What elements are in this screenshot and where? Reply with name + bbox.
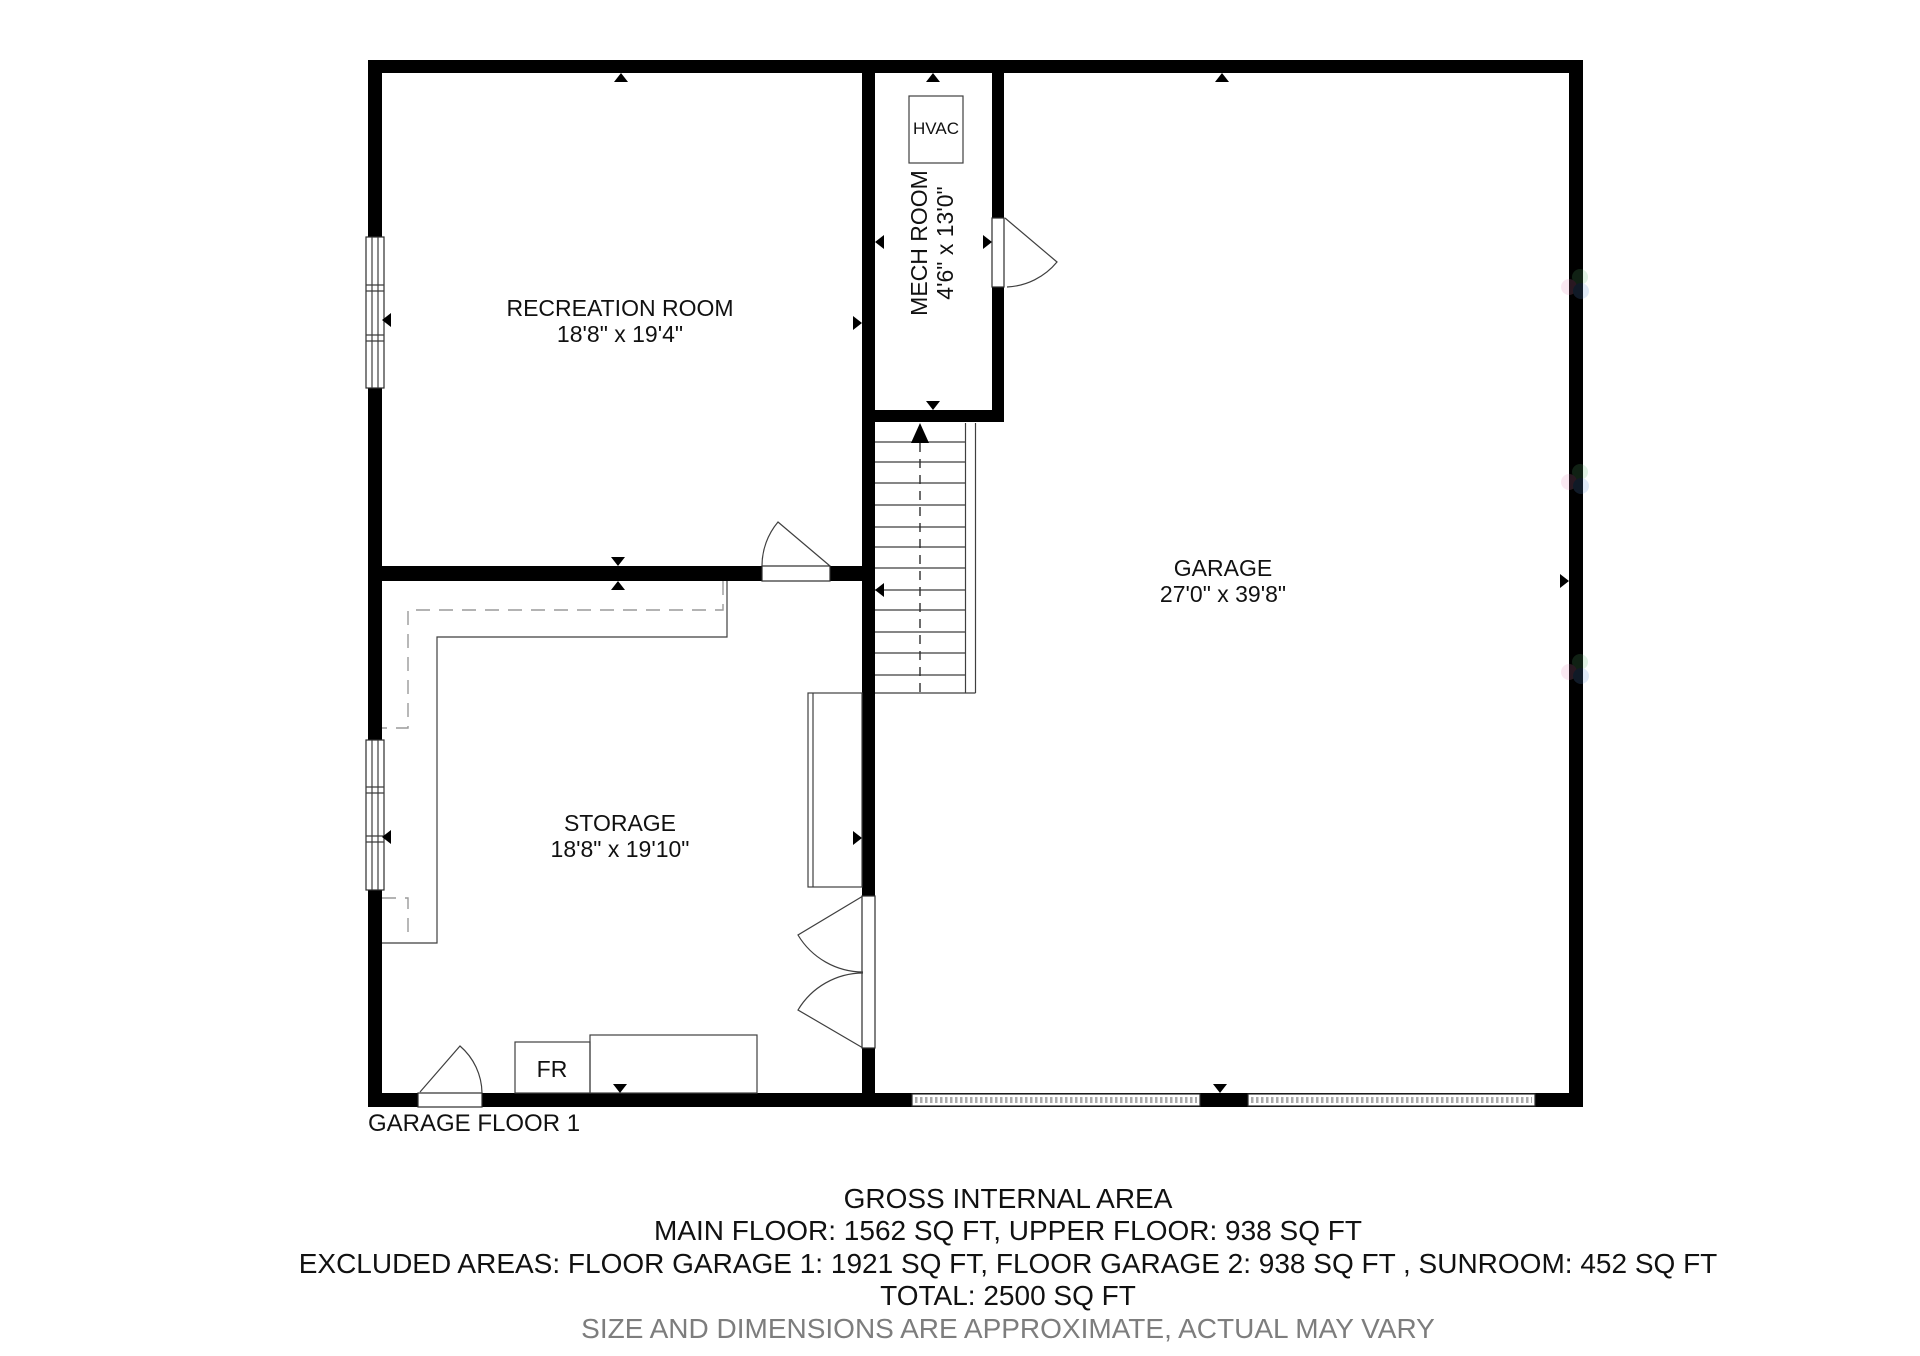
garage-dims: 27'0" x 39'8" xyxy=(1160,581,1286,607)
storage-workbench xyxy=(808,693,862,887)
door-storage-entry xyxy=(418,1046,482,1107)
window-recreation xyxy=(366,237,384,388)
summary-total: TOTAL: 2500 SQ FT xyxy=(880,1280,1136,1311)
freezer-label: FR xyxy=(537,1056,568,1082)
freezer-unit: FR xyxy=(515,1042,590,1093)
room-labels: RECREATION ROOM 18'8" x 19'4" MECH ROOM … xyxy=(506,170,1286,862)
summary-disclaimer: SIZE AND DIMENSIONS ARE APPROXIMATE, ACT… xyxy=(581,1313,1435,1344)
summary-excluded: EXCLUDED AREAS: FLOOR GARAGE 1: 1921 SQ … xyxy=(299,1248,1718,1279)
recreation-room-name: RECREATION ROOM xyxy=(506,295,733,321)
recreation-room-dims: 18'8" x 19'4" xyxy=(557,321,683,347)
staircase xyxy=(875,423,976,693)
floor-plan-page: FR HVAC xyxy=(0,0,1920,1356)
mech-room-name: MECH ROOM xyxy=(906,170,932,316)
storage-dims: 18'8" x 19'10" xyxy=(551,836,690,862)
floor-plan-drawing: FR HVAC xyxy=(0,0,1920,1356)
window-storage xyxy=(366,740,384,890)
mech-room-label-group: MECH ROOM 4'6" x 13'0" xyxy=(906,170,958,316)
storage-shelf-outline xyxy=(382,581,727,943)
storage-name: STORAGE xyxy=(564,810,676,836)
area-summary: GROSS INTERNAL AREA MAIN FLOOR: 1562 SQ … xyxy=(299,1183,1718,1344)
mech-room-dims: 4'6" x 13'0" xyxy=(932,186,958,299)
door-recreation xyxy=(762,522,830,581)
door-mech-room xyxy=(992,218,1057,287)
stair-up-arrow-icon xyxy=(911,423,929,443)
summary-title: GROSS INTERNAL AREA xyxy=(844,1183,1173,1214)
garage-door-left xyxy=(912,1094,1200,1106)
floor-title: GARAGE FLOOR 1 xyxy=(368,1110,580,1137)
garage-door-right xyxy=(1248,1094,1535,1106)
garage-name: GARAGE xyxy=(1174,555,1272,581)
double-door-storage-garage xyxy=(798,896,875,1048)
hvac-unit: HVAC xyxy=(909,96,963,163)
hvac-label: HVAC xyxy=(913,119,959,138)
summary-main-upper: MAIN FLOOR: 1562 SQ FT, UPPER FLOOR: 938… xyxy=(654,1215,1362,1246)
